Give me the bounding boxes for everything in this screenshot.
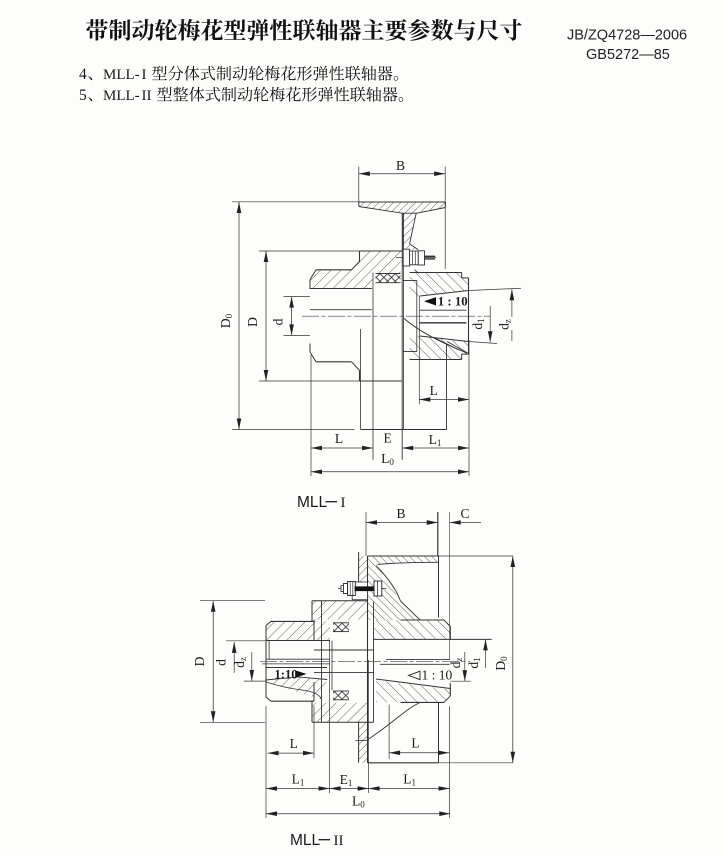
- svg-text:GB5272—85: GB5272—85: [586, 47, 670, 63]
- svg-text:5: 5: [79, 87, 87, 104]
- svg-text:D: D: [192, 656, 207, 666]
- svg-text:MLL-: MLL-: [103, 67, 140, 83]
- svg-text:L: L: [335, 431, 343, 446]
- svg-text:4: 4: [79, 66, 87, 83]
- svg-text:1 : 10: 1 : 10: [422, 668, 453, 683]
- svg-text:B: B: [396, 158, 405, 173]
- svg-text:MLL: MLL: [297, 494, 328, 511]
- svg-text:L: L: [430, 383, 438, 398]
- svg-text:L: L: [411, 736, 419, 751]
- svg-text:L: L: [290, 736, 298, 751]
- svg-text:MLL: MLL: [290, 832, 321, 849]
- svg-text:I: I: [142, 67, 147, 83]
- svg-text:II: II: [142, 88, 152, 104]
- svg-text:II: II: [334, 833, 344, 849]
- svg-text:C: C: [460, 506, 469, 521]
- svg-text:JB/ZQ4728—2006: JB/ZQ4728—2006: [567, 28, 687, 44]
- svg-text:I: I: [341, 495, 346, 511]
- svg-text:1 : 10: 1 : 10: [438, 295, 468, 309]
- svg-text:d: d: [213, 659, 228, 666]
- svg-text:D: D: [245, 317, 260, 327]
- svg-text:d: d: [271, 318, 286, 325]
- svg-text:1:10: 1:10: [275, 668, 298, 682]
- svg-text:MLL-: MLL-: [103, 88, 140, 104]
- svg-text:E: E: [383, 431, 391, 446]
- svg-text:B: B: [396, 506, 405, 521]
